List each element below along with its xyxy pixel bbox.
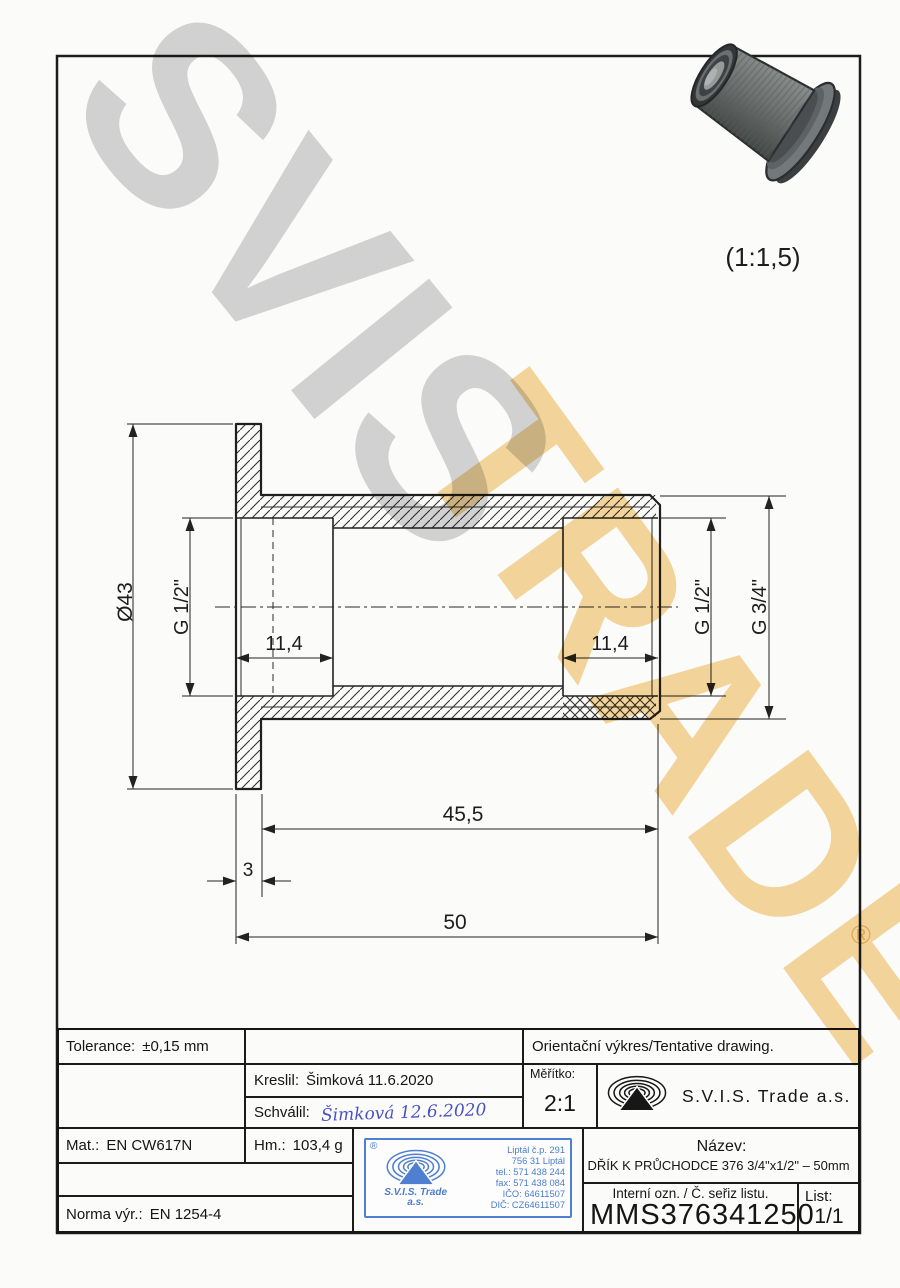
dim-thread-outer: G 3/4" [749,579,771,635]
dim-thread-depth-left: 11,4 [265,633,302,655]
dim-thread-right: G 1/2" [692,579,714,635]
drawing-sheet: Ø43 G 1/2" 11,4 11,4 G 1/2" G 3/4" 45,5 … [0,0,900,1288]
preview-scale-note: (1:1,5) [725,242,800,272]
watermark-registered-icon: ® [851,920,871,951]
dim-thread-left: G 1/2" [171,579,193,635]
dim-flange-thickness: 3 [243,860,254,881]
section-view [215,424,678,789]
dim-flange-diameter: Ø43 [114,582,137,622]
title-block: Tolerance: ±0,15 mm Orientační výkres/Te… [57,1028,860,1233]
dim-body-length: 45,5 [443,803,484,826]
title-block-border [57,1028,860,1233]
part-3d-preview: (1:1,5) [672,20,852,272]
dim-thread-depth-right: 11,4 [591,633,628,655]
dim-total-length: 50 [443,911,466,934]
